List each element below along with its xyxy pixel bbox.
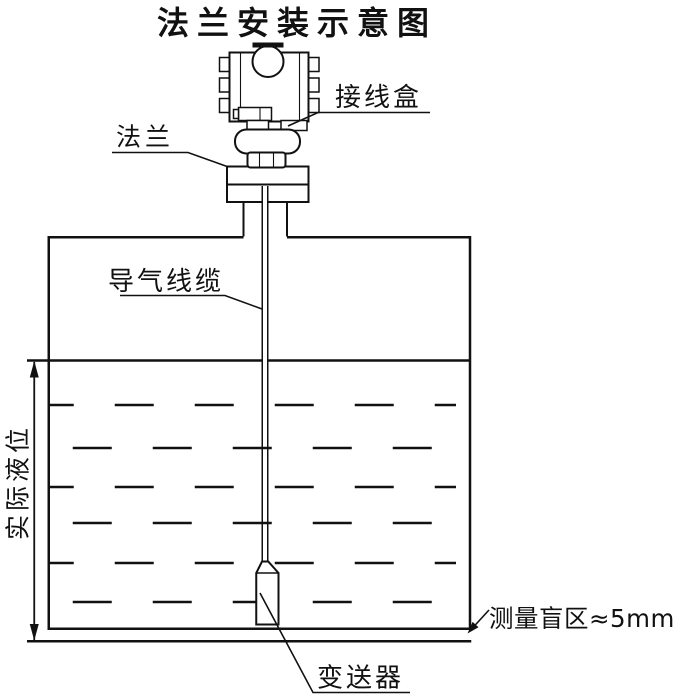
rib [220,99,231,113]
transmitter-head [220,43,320,168]
leader-flange [112,153,229,168]
housing-ribs-left [220,58,231,113]
probe-transmitter [256,562,278,625]
page-title: 法兰安装示意图 [157,4,437,42]
label-actual-level: 实际液位 [4,424,33,540]
cable-core [263,186,267,563]
housing-ribs-right [308,58,319,113]
hex-nut [248,153,286,168]
dimension-arrowhead-down [30,624,39,641]
rib [220,58,231,72]
rib [308,78,319,92]
cap-top-band [253,43,284,48]
display-cap [253,46,284,77]
swivel-joint [235,130,300,154]
rib [308,99,319,113]
flange-plate-top [227,167,309,185]
label-transmitter: 变送器 [317,664,404,694]
rib [220,78,231,92]
label-junction-box: 接线盒 [335,83,422,113]
diagram-canvas: 法兰安装示意图 接线盒 法兰 导气线缆 实际液位 变送器 测量盲区≈5mm [0,0,700,700]
leader-air-cable [120,296,262,310]
tank [27,236,471,641]
dimension-arrowhead-up [30,361,39,378]
probe-body [256,562,278,625]
cable-gland-cap [234,110,239,119]
liquid-dashes [49,405,456,602]
flange-installation-diagram-page: 法兰安装示意图 接线盒 法兰 导气线缆 实际液位 变送器 测量盲区≈5mm [0,0,700,700]
rib [308,58,319,72]
cable-gland [239,108,272,121]
air-cable [262,186,268,563]
label-blind-zone: 测量盲区≈5mm [489,604,675,633]
label-flange: 法兰 [116,123,174,152]
label-air-cable: 导气线缆 [108,267,224,297]
